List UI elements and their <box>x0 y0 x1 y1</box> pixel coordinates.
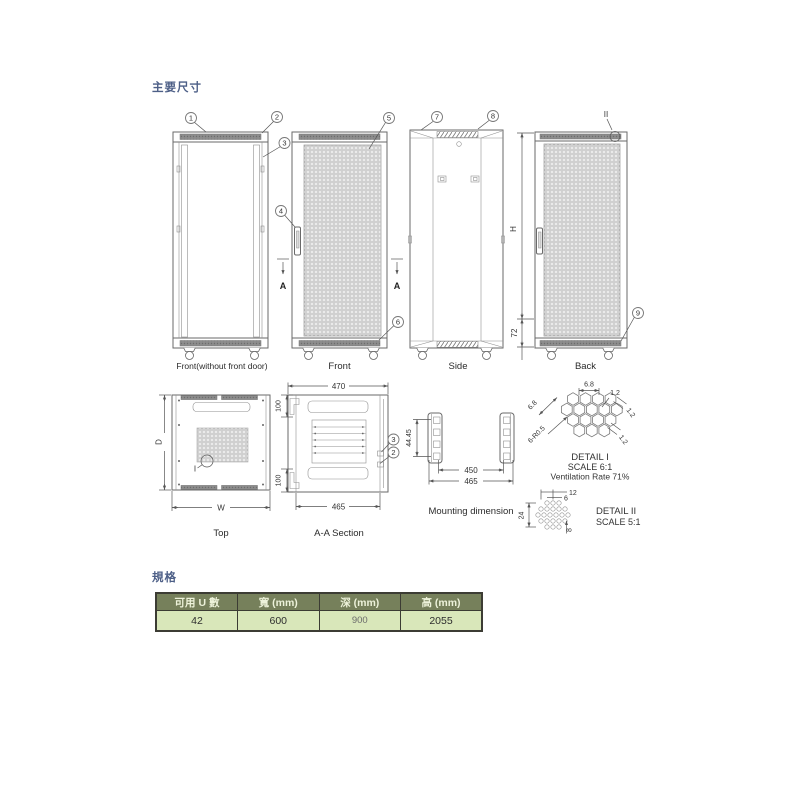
perforated-back-door <box>544 144 620 336</box>
caster <box>481 348 493 360</box>
svg-text:1.2: 1.2 <box>617 434 629 446</box>
dim-top-width: W <box>172 491 270 513</box>
bottom-vent-strip <box>299 341 380 347</box>
perforated-door <box>304 145 381 336</box>
specs-title: 規格 <box>152 569 177 585</box>
spec-value-height: 2055 <box>401 611 483 632</box>
mounting-rail-right <box>254 145 260 337</box>
dim-perf-row-offset: 8 <box>567 521 574 534</box>
front-label: Front <box>328 361 351 372</box>
top-slot <box>308 401 368 413</box>
svg-text:24: 24 <box>519 512 526 520</box>
detail1-scale: SCALE 6:1 <box>568 462 613 472</box>
callout-2: 2 <box>262 112 283 134</box>
top-vent-hatch <box>437 132 478 138</box>
spec-value-depth: 900 <box>319 611 401 632</box>
view-front: Front A A <box>277 132 403 372</box>
dim-hex-radius: 6-R0.5 <box>527 417 567 445</box>
detail2-ref-label: II <box>604 110 608 119</box>
spec-value-usable-u: 42 <box>156 611 238 632</box>
hex-mesh <box>561 393 622 437</box>
bottom-vent-strip <box>180 341 261 347</box>
callout-1: 1 <box>186 113 207 133</box>
svg-text:9: 9 <box>636 309 640 318</box>
spec-table-value-row: 42 600 900 2055 <box>156 611 482 632</box>
svg-text:6-R0.5: 6-R0.5 <box>527 425 547 445</box>
callout-9: 9 <box>621 308 644 342</box>
section-cut-marker-right: A <box>391 259 403 291</box>
dim-mount-unit-pitch: 44.45 <box>406 420 431 457</box>
dim-aa-bottom-width: 465 <box>296 493 380 512</box>
top-label: Top <box>213 528 228 539</box>
callout-7: 7 <box>421 112 443 131</box>
top-vent-strip <box>299 134 380 140</box>
detail2-title: DETAIL II <box>596 506 636 517</box>
spec-header-width: 寬 (mm) <box>238 593 320 611</box>
callout-aa-2: 2 <box>380 447 399 464</box>
back-label: Back <box>575 361 596 372</box>
cable-slot <box>193 403 250 412</box>
spec-header-depth: 深 (mm) <box>319 593 401 611</box>
side-hole <box>457 142 462 147</box>
dim-72: 72 <box>510 328 519 337</box>
round-perforation <box>536 501 570 529</box>
svg-text:2: 2 <box>275 113 279 122</box>
svg-text:465: 465 <box>332 503 346 512</box>
svg-text:6.8: 6.8 <box>584 382 594 389</box>
callout-3: 3 <box>263 138 290 158</box>
view-side: Side <box>409 130 505 372</box>
view-top: I D W Top <box>155 395 271 539</box>
svg-text:6: 6 <box>396 318 400 327</box>
section-cut-marker-left: A <box>277 259 289 291</box>
caster <box>368 348 380 360</box>
rack-cabinet-drawing-page: 主要尺寸 規格 <box>0 0 800 800</box>
svg-text:44.45: 44.45 <box>406 429 413 447</box>
detail-1: 6.8 1.2 6.8 6-R0.5 1.2 <box>527 382 636 482</box>
detail1-ventilation: Ventilation Rate 71% <box>551 472 630 482</box>
dim-back-plinth: 72 <box>510 319 522 360</box>
caster <box>603 348 615 360</box>
side-latch <box>471 176 479 182</box>
section-letter: A <box>280 281 287 291</box>
detail2-scale: SCALE 5:1 <box>596 517 641 527</box>
spec-value-width: 600 <box>238 611 320 632</box>
view-front-open: Front(without front door) <box>173 132 268 371</box>
dim-H: H <box>509 226 518 232</box>
svg-text:8: 8 <box>567 528 574 532</box>
caster <box>303 348 315 360</box>
front-open-label: Front(without front door) <box>176 361 267 371</box>
dim-W: W <box>217 504 225 513</box>
view-mounting: 44.45 450 465 Mounting dimension <box>406 413 514 517</box>
dim-back-height: H <box>509 133 534 347</box>
svg-text:5: 5 <box>387 114 391 123</box>
svg-text:1.2: 1.2 <box>624 407 636 419</box>
callout-8: 8 <box>478 111 499 130</box>
drawing-canvas: Front(without front door) Front A <box>0 0 800 570</box>
svg-text:6: 6 <box>564 495 568 502</box>
top-mesh-area <box>197 428 248 462</box>
caster <box>184 348 196 360</box>
dim-perf-pitch-double: 12 <box>541 490 577 500</box>
detail-2: 12 6 24 8 DETAIL II SCALE 5:1 <box>519 490 641 534</box>
dim-perf-col-height: 24 <box>519 503 537 527</box>
view-aa-section: 470 <box>276 382 400 539</box>
dim-top-depth: D <box>155 395 172 490</box>
svg-text:450: 450 <box>464 466 478 475</box>
detail1-ref-label: I <box>194 465 196 474</box>
svg-text:1.2: 1.2 <box>610 390 620 397</box>
dim-hex-diag: 6.8 <box>527 398 557 416</box>
spec-header-height: 高 (mm) <box>401 593 483 611</box>
dim-aa-top-width: 470 <box>288 382 388 394</box>
callout-5: 5 <box>369 113 395 150</box>
dim-D: D <box>155 439 164 445</box>
top-vent-strip <box>180 134 261 140</box>
svg-text:1: 1 <box>189 114 193 123</box>
svg-text:100: 100 <box>276 400 283 412</box>
svg-text:8: 8 <box>491 112 495 121</box>
top-vent-strip <box>540 134 621 139</box>
svg-text:100: 100 <box>276 475 283 487</box>
dim-hex-width: 6.8 <box>579 382 599 396</box>
svg-text:12: 12 <box>569 490 577 497</box>
svg-text:470: 470 <box>332 382 346 391</box>
spec-header-usable-u: 可用 U 數 <box>156 593 238 611</box>
dim-mount-hole-span: 450 <box>439 460 504 475</box>
caster <box>249 348 261 360</box>
rail-block <box>312 420 366 463</box>
bottom-vent-strip <box>540 341 621 347</box>
caster <box>417 348 429 360</box>
view-back: Back II H 72 <box>509 110 627 372</box>
caster <box>546 348 558 360</box>
side-latch <box>438 176 446 182</box>
spec-table-header-row: 可用 U 數 寬 (mm) 深 (mm) 高 (mm) <box>156 593 482 611</box>
svg-text:7: 7 <box>435 113 439 122</box>
aa-section-label: A-A Section <box>314 528 364 539</box>
mount-rail-right <box>500 413 514 463</box>
side-label: Side <box>448 361 467 372</box>
mounting-rail-left <box>182 145 188 337</box>
section-letter: A <box>394 281 401 291</box>
mounting-label: Mounting dimension <box>428 506 513 517</box>
svg-text:465: 465 <box>464 477 478 486</box>
svg-text:6.8: 6.8 <box>527 399 539 411</box>
svg-text:2: 2 <box>391 448 395 457</box>
rail-block-lines <box>313 426 366 454</box>
svg-text:3: 3 <box>391 435 395 444</box>
spec-table: 可用 U 數 寬 (mm) 深 (mm) 高 (mm) 42 600 900 2… <box>155 592 483 632</box>
bottom-vent-hatch <box>437 341 478 347</box>
bottom-slot <box>308 468 368 480</box>
callout-6: 6 <box>379 317 404 341</box>
svg-text:4: 4 <box>279 207 283 216</box>
svg-text:3: 3 <box>282 139 286 148</box>
